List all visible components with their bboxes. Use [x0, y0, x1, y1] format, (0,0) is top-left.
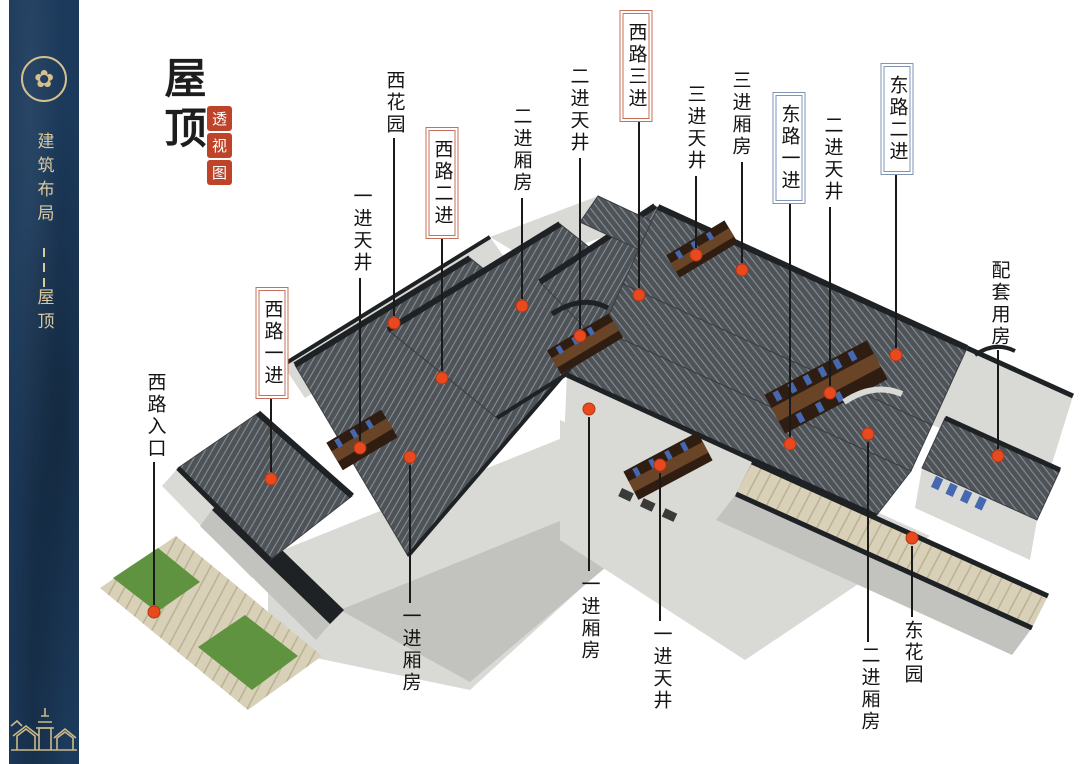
- leader-line-donghuayuan: [911, 546, 913, 617]
- page: ✿ 建筑布局 屋顶 屋顶 透 视 图: [0, 0, 1080, 764]
- label-xilu-sanjin: 西路三进: [623, 13, 650, 119]
- marker-dot-sanjin-xiangfang: [736, 264, 749, 277]
- marker-dot-yijin-tianjing-w: [354, 442, 367, 455]
- marker-dot-peitao-yongfang: [992, 450, 1005, 463]
- marker-dot-erjin-xiangfang-s: [862, 428, 875, 441]
- marker-dot-xilu-erjin: [436, 372, 449, 385]
- leader-line-yijin-tianjing-w: [359, 278, 361, 441]
- marker-dot-donglu-yijin: [784, 438, 797, 451]
- leader-line-xilu-rukou: [153, 462, 155, 605]
- marker-dot-yijin-xiangfang-c: [583, 403, 596, 416]
- marker-dot-erjin-tianjing-e: [824, 387, 837, 400]
- label-erjin-tianjing-e: 二进天井: [823, 115, 842, 203]
- label-erjin-tianjing-w: 二进天井: [569, 66, 588, 154]
- label-xilu-erjin: 西路二进: [429, 130, 456, 236]
- leader-line-yijin-tianjing-c: [659, 473, 661, 621]
- leader-line-erjin-tianjing-e: [829, 207, 831, 386]
- leader-line-donglu-erjin: [895, 172, 897, 348]
- label-sanjin-tianjing: 三进天井: [686, 84, 705, 172]
- label-donglu-erjin: 东路二进: [884, 66, 911, 172]
- marker-dot-xihuayuan: [388, 317, 401, 330]
- marker-dot-xilu-sanjin: [633, 289, 646, 302]
- marker-dot-xilu-rukou: [148, 606, 161, 619]
- label-yijin-tianjing-c: 一进天井: [652, 624, 671, 712]
- label-erjin-xiangfang-n: 二进厢房: [512, 106, 531, 194]
- leader-line-erjin-xiangfang-s: [867, 442, 869, 642]
- leader-line-xilu-sanjin: [638, 120, 640, 288]
- leader-line-xihuayuan: [393, 138, 395, 316]
- label-yijin-xiangfang-c: 一进厢房: [580, 574, 599, 662]
- marker-dot-sanjin-tianjing: [690, 249, 703, 262]
- marker-dot-donghuayuan: [906, 532, 919, 545]
- marker-dot-donglu-erjin: [890, 349, 903, 362]
- label-peitao-yongfang: 配套用房: [990, 260, 1009, 348]
- label-erjin-xiangfang-s: 二进厢房: [860, 645, 879, 733]
- leader-line-yijin-xiangfang-c: [588, 417, 590, 571]
- marker-dot-yijin-xiangfang-l: [404, 451, 417, 464]
- marker-dot-erjin-tianjing-w: [574, 330, 587, 343]
- leader-line-peitao-yongfang: [997, 350, 999, 449]
- leader-line-donglu-yijin: [789, 202, 791, 437]
- label-donglu-yijin: 东路一进: [776, 95, 803, 201]
- label-sanjin-xiangfang: 三进厢房: [731, 70, 750, 158]
- label-xihuayuan: 西花园: [385, 70, 404, 136]
- label-yijin-tianjing-w: 一进天井: [352, 186, 371, 274]
- leader-line-yijin-xiangfang-l: [409, 465, 411, 603]
- label-xilu-yijin: 西路一进: [259, 290, 286, 396]
- leader-line-erjin-xiangfang-n: [521, 198, 523, 299]
- label-donghuayuan: 东花园: [903, 620, 922, 686]
- leader-line-sanjin-tianjing: [695, 176, 697, 248]
- label-xilu-rukou: 西路入口: [146, 372, 165, 460]
- leader-line-erjin-tianjing-w: [579, 158, 581, 329]
- marker-dot-yijin-tianjing-c: [654, 459, 667, 472]
- leader-line-sanjin-xiangfang: [741, 162, 743, 263]
- marker-dot-xilu-yijin: [265, 473, 278, 486]
- leader-line-xilu-erjin: [441, 238, 443, 371]
- leader-line-xilu-yijin: [270, 398, 272, 472]
- label-yijin-xiangfang-l: 一进厢房: [401, 606, 420, 694]
- marker-dot-erjin-xiangfang-n: [516, 300, 529, 313]
